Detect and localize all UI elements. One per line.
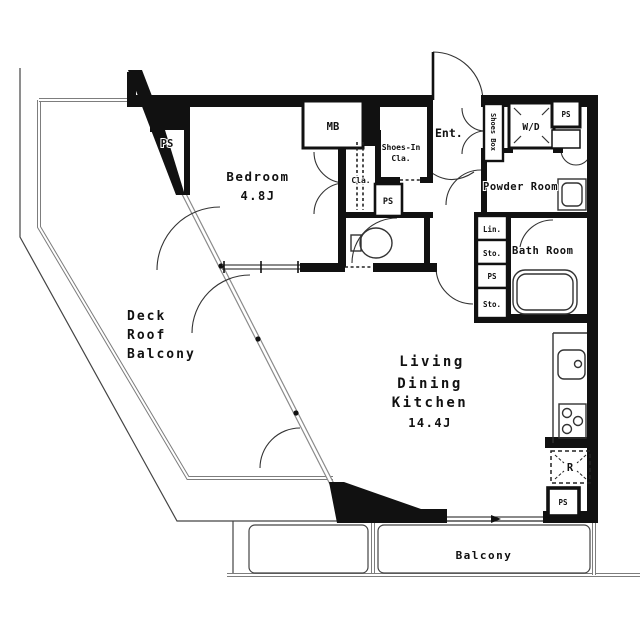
- bath-room-label: Bath Room: [512, 245, 573, 257]
- floor-plan: Bedroom 4.8J Living Dining Kitchen 14.4J…: [0, 0, 640, 634]
- shoes-in-closet-label-line1: Shoes-In: [382, 143, 421, 152]
- shoes-in-right-wall: [427, 107, 433, 182]
- deck-label-line1: Deck: [127, 309, 166, 324]
- deck-label-line2: Roof: [127, 328, 166, 343]
- bedroom-bottom-wall-a: [300, 263, 345, 272]
- ps-label-column: PS: [487, 272, 497, 281]
- linen-label: Lin.: [483, 225, 501, 234]
- meter-box-label: MB: [327, 121, 340, 133]
- window-marker: [491, 515, 501, 523]
- storage-lower-label: Sto.: [483, 300, 501, 309]
- bedroom-bottom-wall-b: [373, 263, 437, 272]
- ps-label-hall: PS: [383, 197, 393, 207]
- ldk-hall-door-arc: [436, 267, 473, 304]
- toilet-right-wall: [424, 212, 430, 268]
- ldk-label-line1: Living: [399, 354, 465, 370]
- deck-door-arc-lower: [260, 428, 300, 468]
- entrance-label: Ent.: [435, 126, 463, 140]
- powder-door-arc: [446, 170, 481, 205]
- ldk-window: [447, 515, 543, 523]
- refrigerator-label: R: [567, 462, 574, 474]
- diagonal-glazing: [180, 189, 335, 488]
- glazing-joint: [218, 263, 223, 268]
- shoesbox-bifold-arc-1: [462, 108, 485, 131]
- ps-label-bedroom: PS: [161, 138, 174, 150]
- deck-door-arc-bedroom: [157, 207, 220, 270]
- bedroom-window: [222, 261, 300, 273]
- ldk-label-line3: Kitchen: [392, 395, 469, 411]
- shoes-in-bottom-wall-a: [377, 177, 400, 183]
- storage-upper-label: Sto.: [483, 249, 501, 258]
- glazing-joint: [293, 410, 298, 415]
- shoes-box-label: Shoes Box: [489, 113, 497, 152]
- diagonal-wall-bottom: [329, 482, 447, 523]
- washbasin: [558, 179, 586, 210]
- shoes-in-closet-label-line2: Cla.: [391, 154, 410, 163]
- bedroom-label: Bedroom: [226, 169, 289, 184]
- closet-label: Cla.: [351, 176, 370, 185]
- balcony-panel-left: [249, 525, 368, 573]
- wall-right: [587, 95, 598, 520]
- toilet-door-arc: [352, 218, 397, 263]
- powder-room-label: Powder Room: [483, 181, 558, 193]
- entrance-step-line: [428, 170, 474, 180]
- bathtub: [513, 270, 577, 314]
- bedroom-left-wall: [184, 107, 190, 195]
- kitchen-sink: [558, 350, 585, 379]
- lower-balcony-outline: [227, 521, 640, 576]
- ps-label-top-right: PS: [561, 110, 571, 119]
- ldk-label-line2: Dining: [397, 376, 463, 392]
- bedroom-size-label: 4.8J: [241, 189, 276, 203]
- balcony-label: Balcony: [456, 549, 513, 562]
- deck-label-line3: Balcony: [127, 347, 196, 362]
- ps-label-kitchen: PS: [558, 498, 568, 507]
- washer-dryer-label: W/D: [522, 122, 539, 133]
- glazing-joint: [255, 336, 260, 341]
- floor-plan-svg: Bedroom 4.8J Living Dining Kitchen 14.4J…: [0, 0, 640, 634]
- cabinet-door-arc-1: [561, 150, 576, 165]
- cabinet-box: [552, 130, 580, 148]
- kitchen-stove: [559, 404, 586, 438]
- shoes-in-bottom-wall-b: [420, 177, 433, 183]
- bath-door-arc: [520, 220, 553, 247]
- entrance-door-arc: [433, 52, 483, 100]
- ldk-size-label: 14.4J: [408, 416, 452, 430]
